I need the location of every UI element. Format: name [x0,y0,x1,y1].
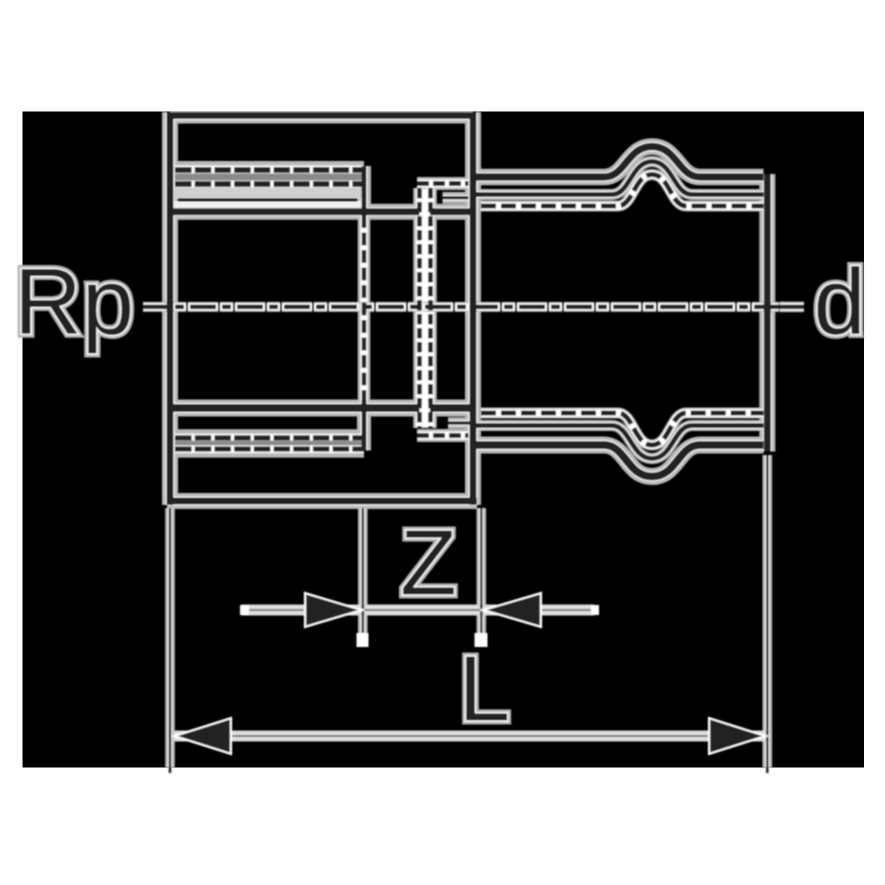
svg-text:L: L [459,636,511,740]
svg-text:Rp: Rp [14,249,134,354]
svg-text:d: d [814,249,866,354]
svg-text:Z: Z [400,511,457,615]
